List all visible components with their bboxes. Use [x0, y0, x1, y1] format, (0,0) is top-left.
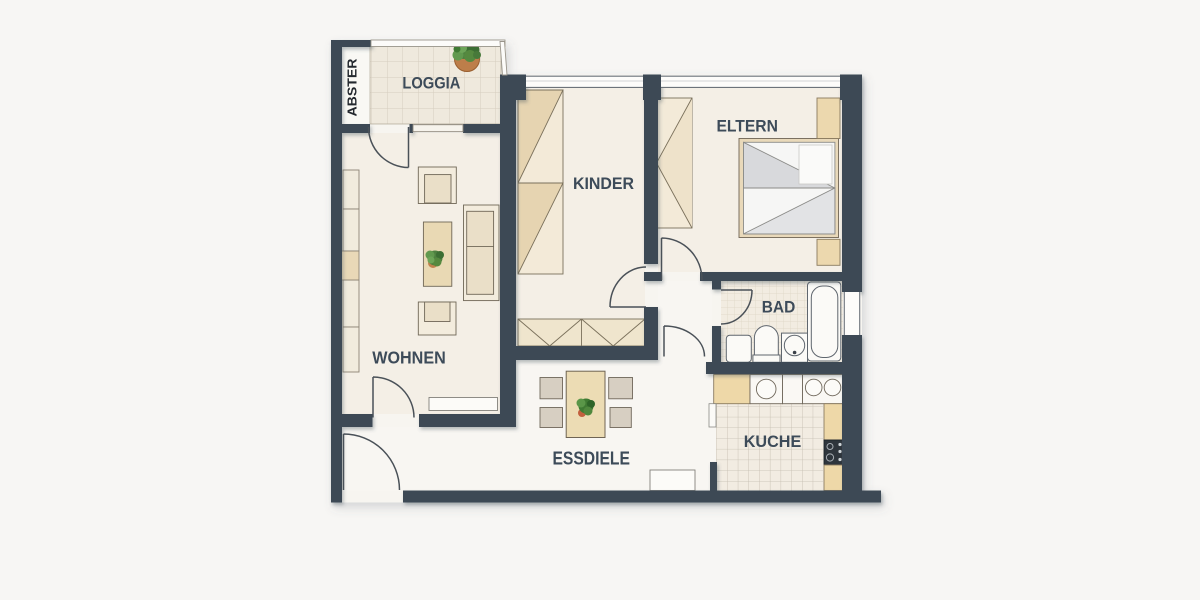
svg-text:WOHNEN: WOHNEN	[372, 348, 446, 368]
svg-text:ABSTER: ABSTER	[345, 58, 360, 117]
svg-text:BAD: BAD	[762, 299, 796, 317]
svg-text:KUCHE: KUCHE	[744, 433, 802, 451]
svg-text:ELTERN: ELTERN	[716, 117, 778, 136]
svg-text:LOGGIA: LOGGIA	[402, 75, 460, 93]
svg-text:ESSDIELE: ESSDIELE	[552, 449, 630, 469]
svg-text:KINDER: KINDER	[573, 174, 634, 193]
